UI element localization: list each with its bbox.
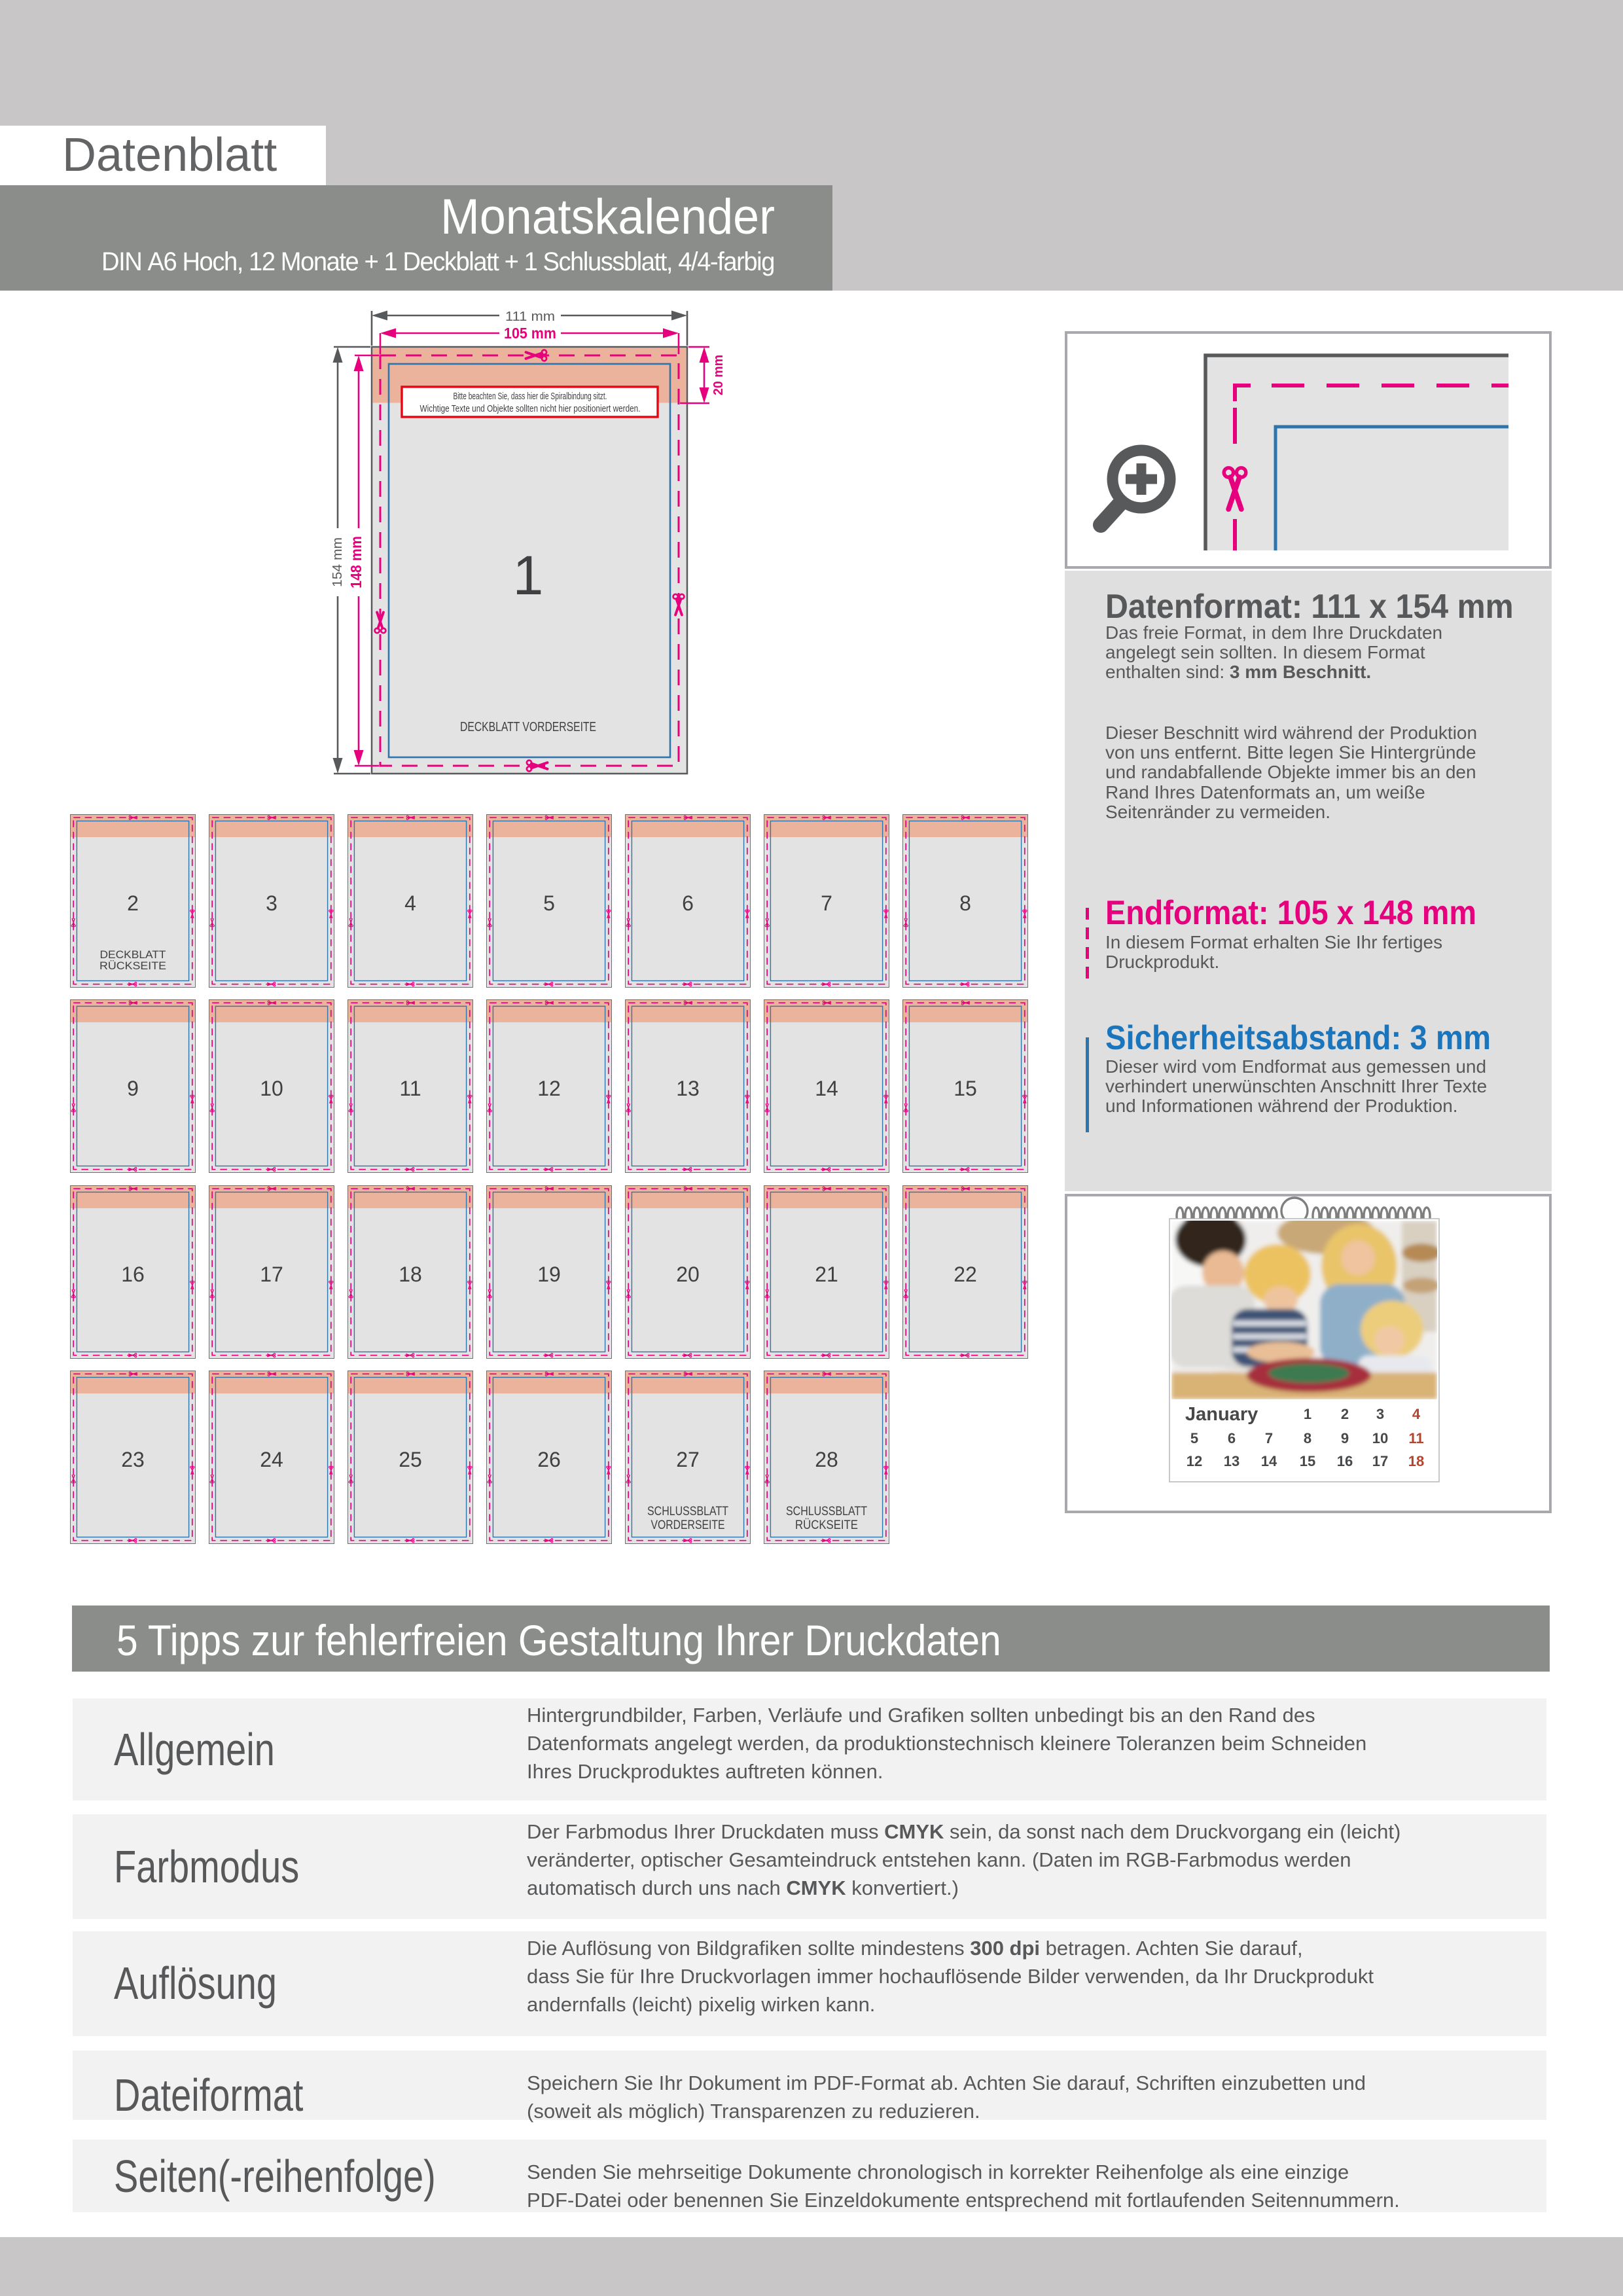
svg-text:SCHLUSSBLATT: SCHLUSSBLATT [647, 1505, 728, 1518]
svg-text:Wichtige Texte und Objekte sol: Wichtige Texte und Objekte sollten nicht… [420, 403, 641, 414]
svg-text:8: 8 [959, 891, 971, 915]
svg-text:13: 13 [1224, 1453, 1240, 1469]
svg-text:26: 26 [537, 1448, 561, 1471]
svg-text:1: 1 [1304, 1406, 1311, 1422]
svg-text:12: 12 [537, 1077, 561, 1100]
svg-text:2: 2 [1341, 1406, 1349, 1422]
svg-text:17: 17 [1372, 1453, 1388, 1469]
svg-text:14: 14 [1261, 1453, 1277, 1469]
svg-text:20 mm: 20 mm [711, 355, 726, 395]
svg-text:6: 6 [682, 891, 694, 915]
svg-text:20: 20 [676, 1263, 700, 1286]
svg-text:15: 15 [954, 1077, 977, 1100]
svg-text:19: 19 [537, 1263, 561, 1286]
svg-text:9: 9 [127, 1077, 139, 1100]
svg-text:3: 3 [1376, 1406, 1384, 1422]
svg-text:14: 14 [815, 1077, 838, 1100]
svg-text:DECKBLATT VORDERSEITE: DECKBLATT VORDERSEITE [460, 720, 596, 734]
svg-text:21: 21 [815, 1263, 838, 1286]
svg-text:13: 13 [676, 1077, 700, 1100]
svg-text:7: 7 [821, 891, 832, 915]
svg-text:5: 5 [1190, 1430, 1198, 1446]
svg-text:27: 27 [676, 1448, 700, 1471]
svg-text:111 mm: 111 mm [505, 310, 555, 324]
svg-text:RÜCKSEITE: RÜCKSEITE [795, 1518, 858, 1532]
svg-text:SCHLUSSBLATT: SCHLUSSBLATT [786, 1505, 867, 1518]
svg-text:10: 10 [1372, 1430, 1388, 1446]
svg-text:154 mm: 154 mm [330, 537, 345, 587]
svg-text:3: 3 [266, 891, 277, 915]
svg-text:16: 16 [121, 1263, 145, 1286]
svg-text:8: 8 [1304, 1430, 1311, 1446]
svg-text:2: 2 [127, 891, 139, 915]
svg-text:VORDERSEITE: VORDERSEITE [651, 1518, 725, 1532]
svg-text:6: 6 [1228, 1430, 1236, 1446]
svg-text:105 mm: 105 mm [504, 325, 556, 342]
svg-text:1: 1 [513, 545, 544, 606]
svg-text:22: 22 [954, 1263, 977, 1286]
svg-text:17: 17 [260, 1263, 283, 1286]
svg-text:4: 4 [1412, 1406, 1421, 1422]
svg-text:9: 9 [1341, 1430, 1349, 1446]
svg-text:5: 5 [543, 891, 555, 915]
svg-text:148 mm: 148 mm [348, 536, 365, 588]
svg-text:15: 15 [1300, 1453, 1315, 1469]
svg-text:4: 4 [404, 891, 416, 915]
svg-text:18: 18 [1408, 1453, 1424, 1469]
svg-text:12: 12 [1186, 1453, 1202, 1469]
svg-text:24: 24 [260, 1448, 283, 1471]
svg-text:11: 11 [399, 1077, 421, 1100]
svg-text:RÜCKSEITE: RÜCKSEITE [99, 960, 166, 972]
svg-text:23: 23 [121, 1448, 145, 1471]
svg-text:18: 18 [399, 1263, 422, 1286]
svg-text:January: January [1185, 1404, 1258, 1425]
svg-text:16: 16 [1337, 1453, 1353, 1469]
svg-text:11: 11 [1408, 1430, 1423, 1446]
svg-text:25: 25 [399, 1448, 422, 1471]
svg-text:28: 28 [815, 1448, 838, 1471]
svg-text:Bitte beachten Sie, dass hier: Bitte beachten Sie, dass hier die Spiral… [454, 391, 607, 402]
svg-text:7: 7 [1265, 1430, 1273, 1446]
svg-text:10: 10 [260, 1077, 283, 1100]
